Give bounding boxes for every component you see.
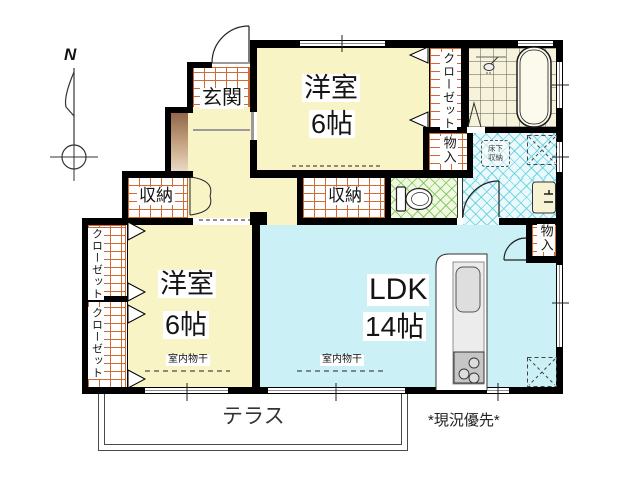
storage-bath-side-label: 物入 — [440, 136, 458, 164]
bathroom-floor — [467, 48, 556, 127]
wall-storage-hall-top — [122, 171, 193, 178]
wall-monoire1-left — [423, 130, 429, 178]
window-kitchen-bottom — [487, 387, 509, 394]
wall-genkan-left — [187, 62, 193, 112]
closet-left-front-line — [127, 225, 128, 388]
genkan-step-line — [193, 129, 250, 131]
closet-top-front-line — [429, 48, 430, 128]
bedroom-top-size: 6帖 — [309, 110, 355, 138]
underfloor-storage-box: 床下 収納 — [481, 140, 510, 167]
closet-left-lower-label: クローゼット — [88, 307, 104, 379]
genkan-label: 玄関 — [200, 88, 244, 109]
entry-door — [212, 26, 249, 63]
laundry-ldk-label: 室内物干 — [320, 355, 364, 366]
bedroom-top-door-opening — [251, 112, 254, 140]
entry-threshold — [212, 62, 250, 64]
bedroom-left-label: 洋室 — [158, 270, 216, 298]
ldk-floor — [260, 225, 556, 388]
toilet-floor — [390, 178, 457, 218]
wall-storage-hall-left — [122, 171, 128, 225]
wall-bath-bottom-right — [485, 127, 556, 133]
window-ldk-right — [556, 265, 563, 347]
entry-step-board — [171, 109, 188, 171]
underfloor-storage-label2: 収納 — [488, 154, 503, 163]
wall-bedroom-ldk — [252, 218, 260, 388]
terrace-label: テラス — [222, 406, 285, 428]
ldk-label: LDK — [367, 274, 429, 306]
storage-mid-label: 収納 — [326, 187, 364, 205]
window-bedroom-top — [300, 40, 385, 48]
wall-bedroom-top-bottom — [250, 170, 430, 178]
wall-storage-hall-bottom — [122, 218, 193, 225]
window-bath-right — [556, 62, 563, 108]
ldk-size: 14帖 — [363, 312, 426, 341]
bedroom-left-size: 6帖 — [163, 311, 209, 339]
storage-hall-label: 収納 — [137, 187, 175, 205]
closet-left-upper-label: クローゼット — [88, 228, 104, 300]
wall-closet-bath — [461, 40, 469, 127]
bedroom-top-label: 洋室 — [302, 74, 360, 102]
wall-band-bottom — [297, 218, 457, 225]
wall-bedroom-top-left-a — [250, 40, 257, 112]
window-bath-top — [518, 40, 553, 48]
window-ldk-bottom — [268, 387, 405, 394]
wall-hall-left — [165, 107, 171, 173]
wall-monoire1-right — [467, 133, 473, 178]
window-washroom-right — [556, 142, 563, 172]
window-bedroom-left-bottom — [145, 387, 228, 394]
storage-ldk-label: 物入 — [537, 224, 555, 252]
current-state-note: *現況優先* — [428, 413, 500, 429]
toilet-sliding-door — [457, 178, 463, 218]
wall-genkan-top — [187, 62, 212, 68]
wall-monoire2-bottom — [526, 256, 563, 263]
closet-top-label: クローゼット — [440, 52, 457, 130]
compass-arrow — [50, 68, 98, 181]
laundry-bedroom-label: 室内物干 — [166, 355, 210, 366]
compass-north-label: N — [64, 46, 76, 64]
wall-bedroom-top-left-b — [250, 140, 257, 172]
floor-plan: 床下 収納 — [0, 0, 640, 480]
